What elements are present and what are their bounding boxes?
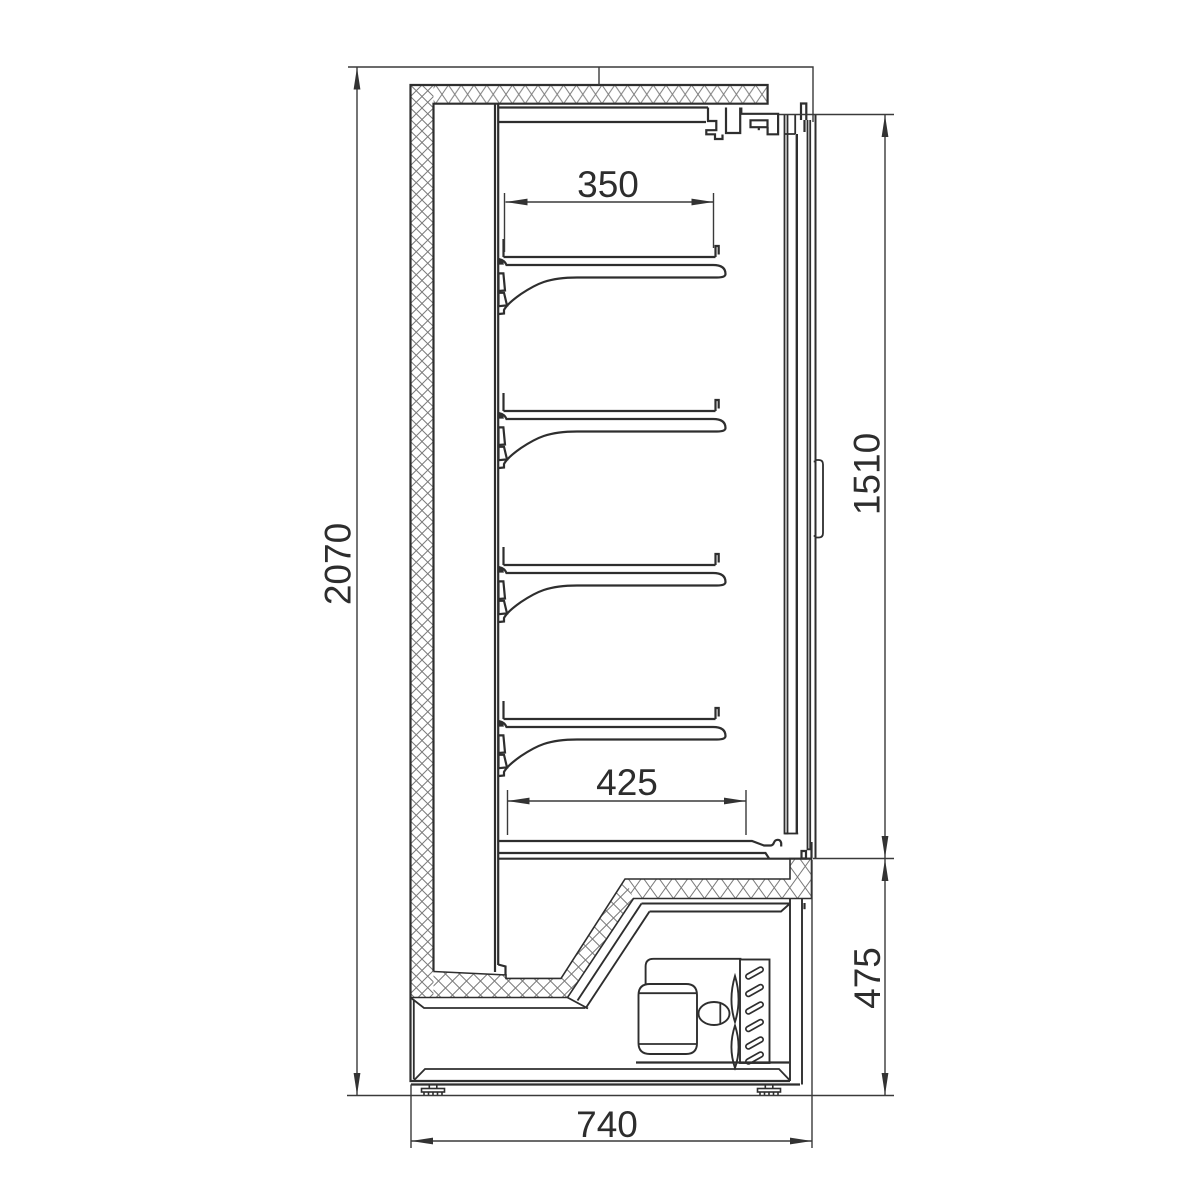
svg-text:425: 425 xyxy=(596,762,658,803)
svg-text:2070: 2070 xyxy=(318,523,359,605)
svg-text:350: 350 xyxy=(577,164,639,205)
svg-text:1510: 1510 xyxy=(847,433,888,515)
svg-text:740: 740 xyxy=(576,1104,638,1145)
svg-text:475: 475 xyxy=(847,947,888,1009)
